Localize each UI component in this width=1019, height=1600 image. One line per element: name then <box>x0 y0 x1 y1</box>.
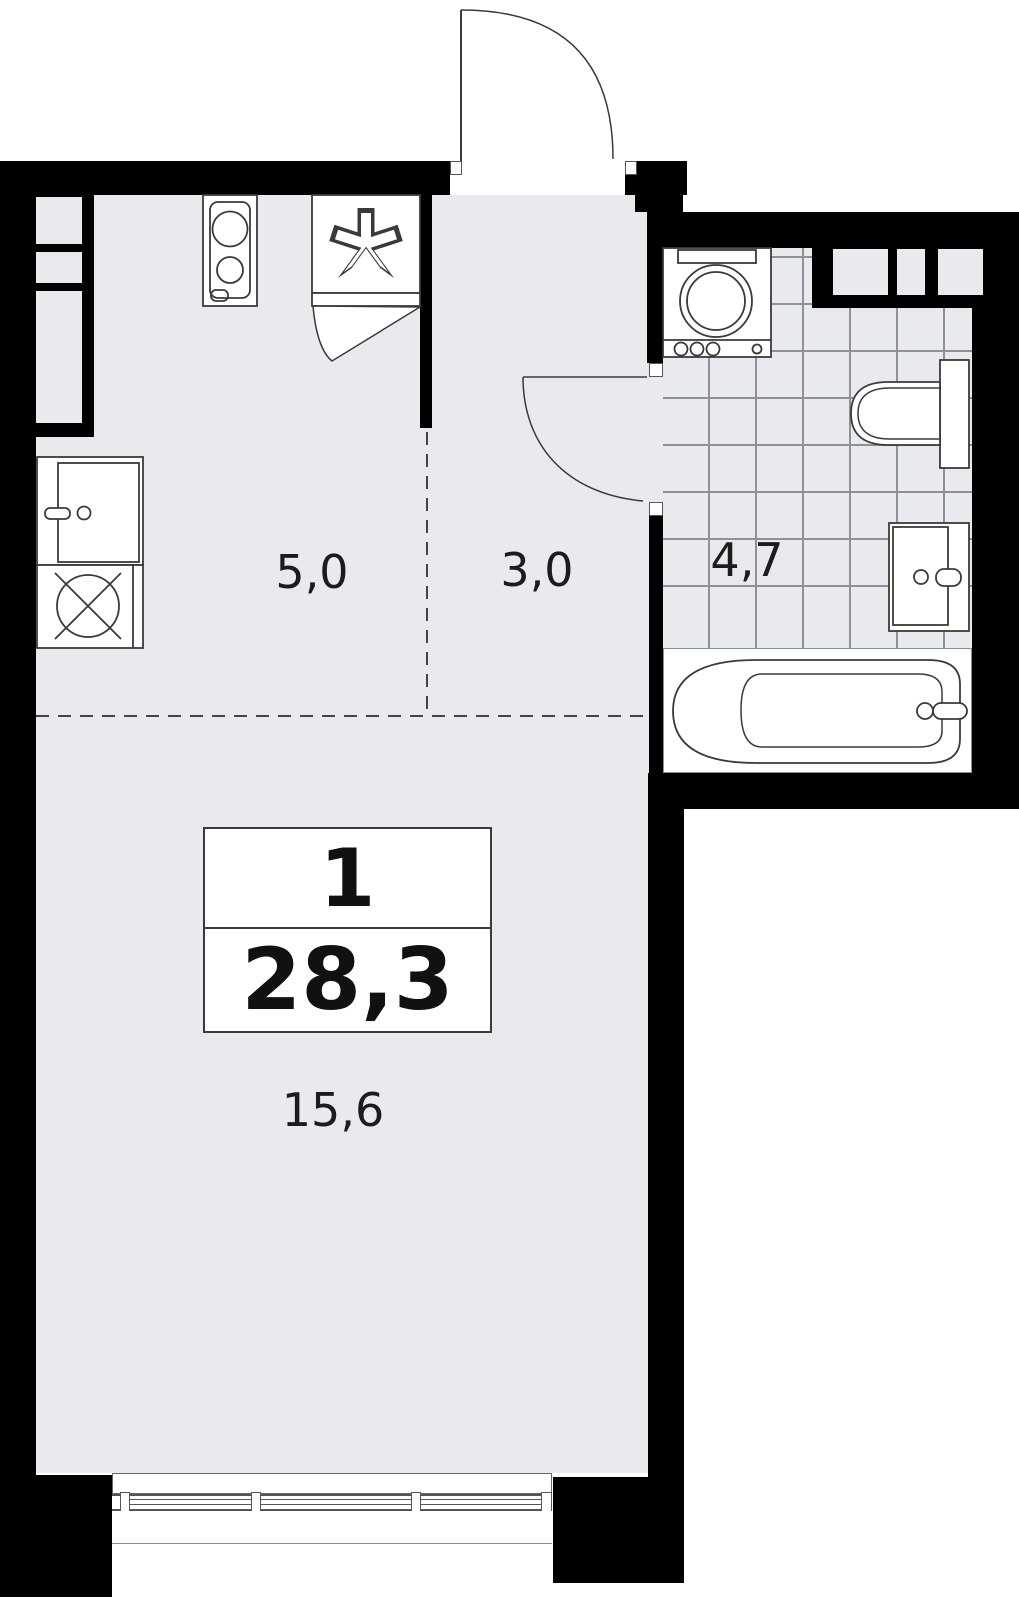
washing-machine <box>663 248 771 357</box>
window-glazing-line <box>130 1499 251 1500</box>
floor-plan: 5,0 3,0 4,7 15,6 1 28,3 <box>0 0 1019 1600</box>
window-glazing-line <box>130 1504 251 1505</box>
kitchen-area-label: 5,0 <box>275 545 348 599</box>
kitchen-unit <box>37 565 143 648</box>
bathroom-area-label: 4,7 <box>710 533 783 587</box>
window-glazing-line <box>421 1504 541 1505</box>
hallway-area-label: 3,0 <box>500 543 573 597</box>
bathroom-sink <box>889 523 969 631</box>
bathtub <box>673 660 967 763</box>
unit-rooms-count: 1 <box>205 829 490 929</box>
kitchen-sink <box>37 457 143 565</box>
window-glazing-line <box>261 1499 411 1500</box>
unit-total-area: 28,3 <box>205 929 490 1031</box>
unit-info-card: 1 28,3 <box>203 827 492 1033</box>
living-room-area-label: 15,6 <box>282 1083 384 1137</box>
window-glazing-line <box>421 1499 541 1500</box>
window-frame <box>112 1494 552 1511</box>
entry-door <box>461 10 613 161</box>
window-mullion <box>120 1492 130 1513</box>
window-mullion <box>541 1492 552 1513</box>
balcony-slab <box>112 1511 552 1597</box>
refrigerator <box>312 195 420 361</box>
window-sill <box>112 1473 552 1494</box>
toilet <box>851 360 969 468</box>
window-glazing-line <box>261 1504 411 1505</box>
balcony-edge-line <box>112 1543 552 1544</box>
window-mullion <box>251 1492 261 1513</box>
fixtures-layer <box>0 0 1019 1600</box>
stove <box>203 195 257 306</box>
window-mullion <box>411 1492 421 1513</box>
bathroom-door <box>523 377 647 501</box>
